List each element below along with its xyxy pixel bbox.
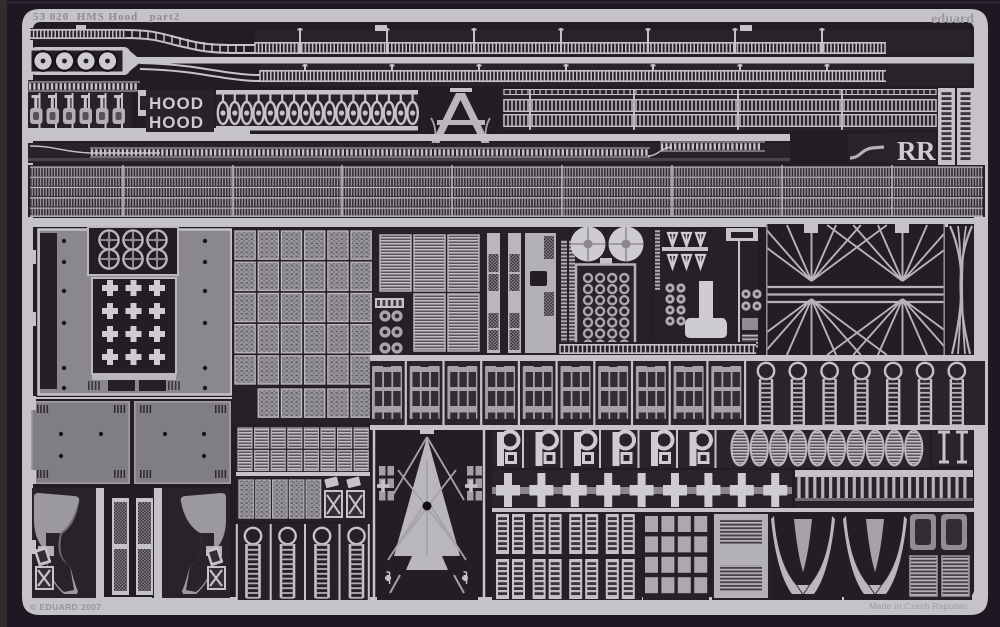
svg-text:Made in Czech Republic: Made in Czech Republic [869, 601, 968, 611]
svg-text:R: R [916, 136, 936, 166]
svg-text:HOOD: HOOD [149, 113, 204, 132]
svg-text:© EDUARD 2007: © EDUARD 2007 [30, 602, 101, 612]
svg-text:HOOD: HOOD [149, 94, 204, 113]
svg-text:eduard: eduard [931, 12, 974, 27]
svg-text:53 020 HMS Hood part2: 53 020 HMS Hood part2 [33, 11, 180, 23]
svg-text:R: R [897, 136, 917, 166]
